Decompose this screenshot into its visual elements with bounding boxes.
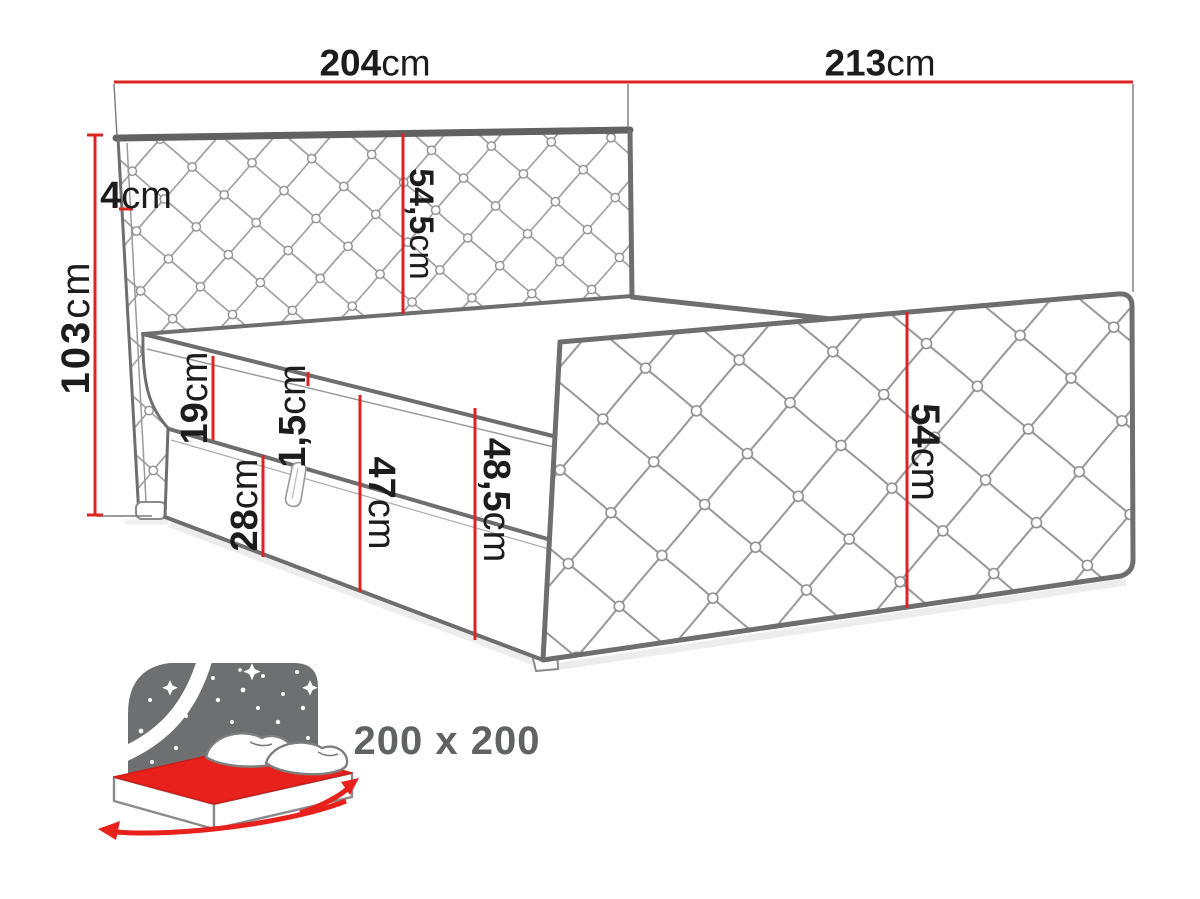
dim-label-28cm: 28cm bbox=[226, 459, 264, 552]
bed-dimension-diagram: 204cm 213cm 103cm 4cm 54,5cm 19cm 1,5cm … bbox=[0, 0, 1200, 899]
bed-size-icon bbox=[98, 659, 359, 840]
dim-label-19cm: 19cm bbox=[176, 352, 214, 445]
size-label-200x200: 200 x 200 bbox=[354, 721, 541, 761]
dim-label-204cm: 204cm bbox=[319, 45, 430, 82]
dim-label-213cm: 213cm bbox=[824, 45, 935, 82]
dim-label-103cm: 103cm bbox=[56, 259, 96, 394]
dim-label-4cm: 4cm bbox=[100, 177, 172, 215]
dim-label-48-5cm: 48,5cm bbox=[477, 438, 515, 563]
dim-label-1-5cm: 1,5cm bbox=[274, 364, 312, 467]
dim-label-54-5cm: 54,5cm bbox=[404, 168, 438, 280]
icon-pillow-right bbox=[266, 743, 347, 775]
dim-label-47cm: 47cm bbox=[362, 457, 400, 550]
bed-line-drawing bbox=[0, 0, 1200, 899]
dim-label-54cm: 54cm bbox=[905, 403, 945, 501]
